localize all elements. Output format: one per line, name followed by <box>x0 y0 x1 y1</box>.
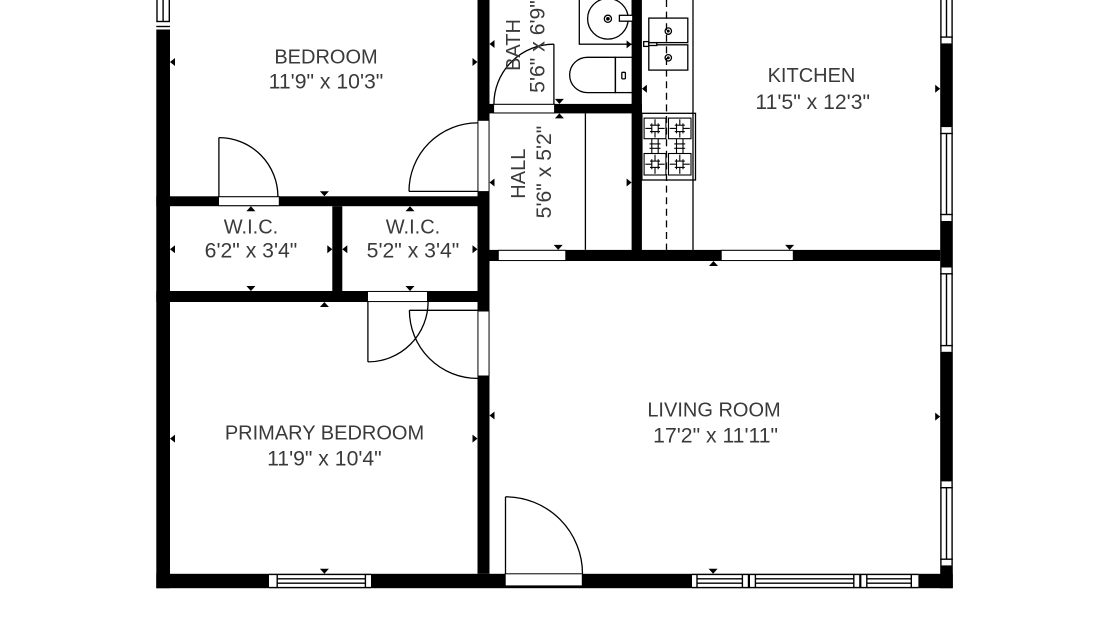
svg-text:11'9" x 10'4": 11'9" x 10'4" <box>267 448 382 471</box>
svg-text:W.I.C.: W.I.C. <box>224 216 278 238</box>
svg-text:6'2" x 3'4": 6'2" x 3'4" <box>205 240 298 263</box>
svg-text:W.I.C.: W.I.C. <box>386 216 440 238</box>
svg-text:5'6" x 5'2": 5'6" x 5'2" <box>533 126 556 219</box>
svg-text:5'2" x 3'4": 5'2" x 3'4" <box>367 240 460 263</box>
svg-text:BATH: BATH <box>503 19 525 71</box>
svg-text:11'5" x 12'3": 11'5" x 12'3" <box>755 91 870 114</box>
svg-text:BEDROOM: BEDROOM <box>274 47 377 69</box>
svg-text:11'9" x 10'3": 11'9" x 10'3" <box>269 71 384 94</box>
svg-text:5'6" x 6'9": 5'6" x 6'9" <box>527 0 550 93</box>
svg-text:KITCHEN: KITCHEN <box>768 65 856 87</box>
svg-text:HALL: HALL <box>508 149 530 199</box>
svg-text:PRIMARY BEDROOM: PRIMARY BEDROOM <box>225 423 424 445</box>
svg-text:17'2" x 11'11": 17'2" x 11'11" <box>653 425 778 448</box>
svg-text:LIVING ROOM: LIVING ROOM <box>647 399 780 421</box>
